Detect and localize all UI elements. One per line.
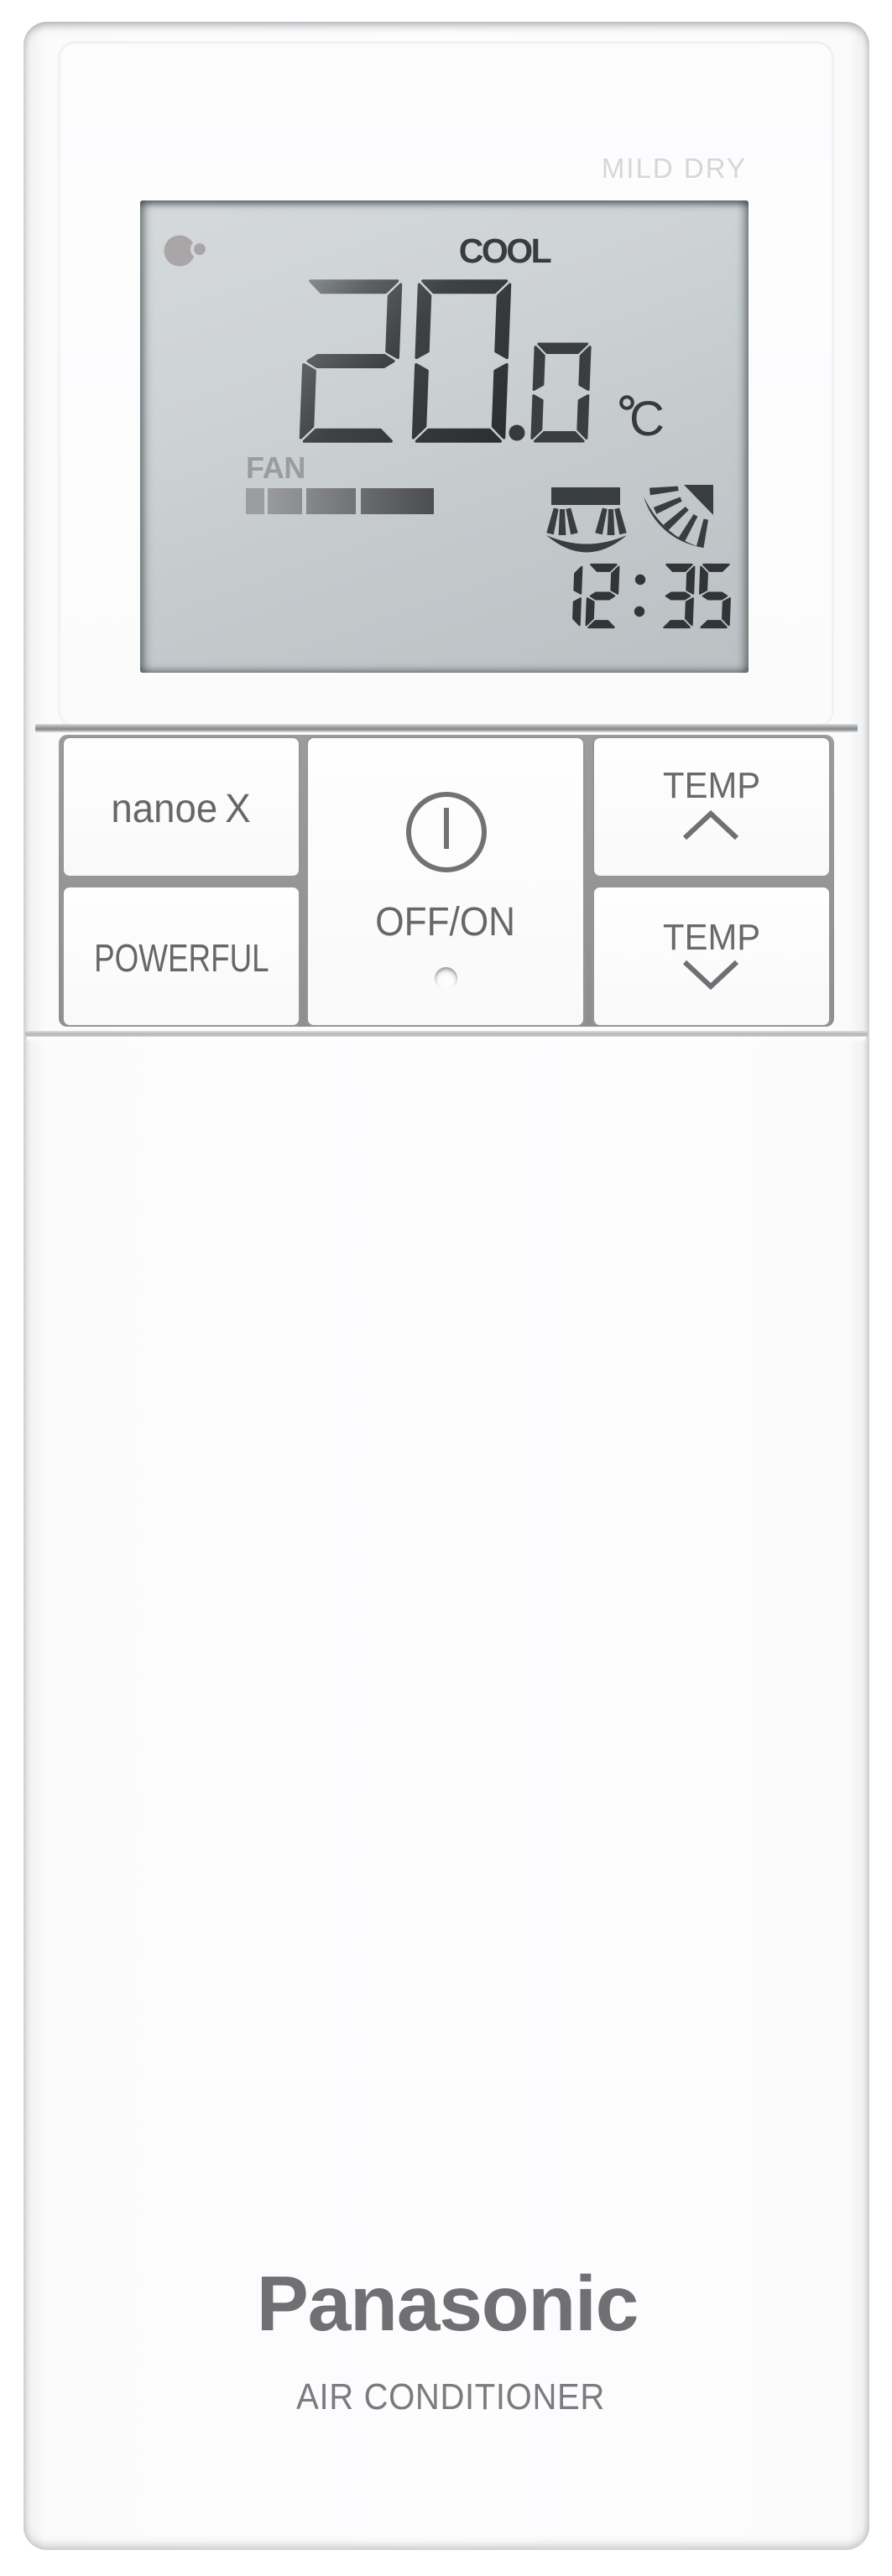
svg-text:C: C (629, 392, 665, 446)
svg-text:FAN: FAN (246, 450, 305, 485)
svg-text:COOL: COOL (459, 232, 551, 270)
